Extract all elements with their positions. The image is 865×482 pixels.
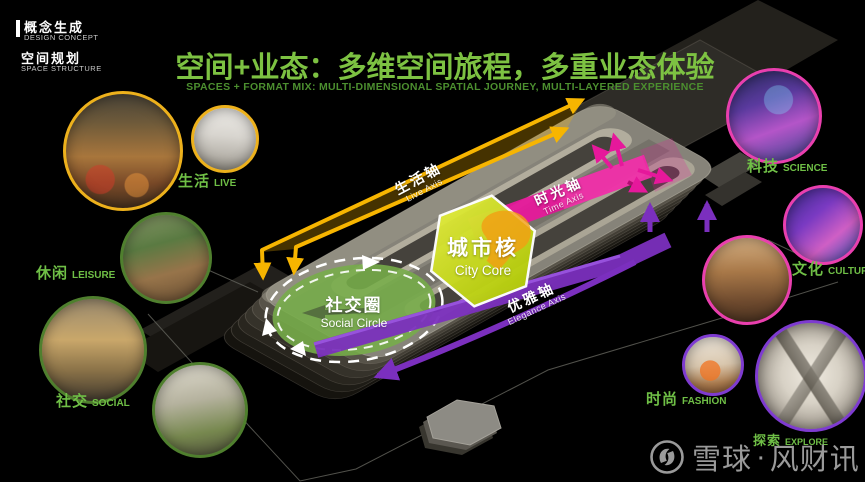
photo-science-arcade — [783, 185, 863, 265]
xueqiu-logo-icon — [648, 438, 686, 476]
city-core-label: 城市核 City Core — [418, 232, 548, 278]
section-2-subtitle: SPACE STRUCTURE — [21, 64, 102, 73]
slide: 生活轴 Live Axis 时光轴 Time Axis 优雅轴 Elegance… — [0, 0, 865, 482]
label-life: 生活LIVE — [178, 170, 236, 191]
photo-science-neon — [726, 68, 822, 164]
label-culture: 文化CULTURE — [792, 258, 865, 279]
page-subtitle: SPACES + FORMAT MIX: MULTI-DIMENSIONAL S… — [152, 81, 738, 93]
watermark: 雪球 · 风财讯 — [648, 436, 860, 478]
watermark-brand-1: 雪球 — [692, 436, 752, 478]
label-fashion: 时尚FASHION — [646, 388, 726, 409]
social-circle-label: 社交圈 Social Circle — [289, 291, 419, 330]
label-science: 科技SCIENCE — [747, 155, 827, 176]
photo-social-foodcourt — [152, 362, 248, 458]
photo-life-restaurant — [63, 91, 183, 211]
watermark-brand-2: 风财讯 — [770, 436, 860, 478]
small-slab — [419, 400, 501, 455]
photo-leisure-terrace — [120, 212, 212, 304]
photo-fashion-mall — [755, 320, 865, 432]
label-social: 社交SOCIAL — [56, 390, 130, 411]
label-leisure: 休闲LEISURE — [36, 262, 115, 283]
photo-social-atrium — [39, 296, 147, 404]
watermark-separator: · — [756, 441, 766, 474]
photo-life-playground — [191, 105, 259, 173]
section-1-subtitle: DESIGN CONCEPT — [24, 33, 99, 42]
page-title: 空间+业态：多维空间旅程，多重业态体验 — [152, 44, 738, 86]
header-accent-bar — [16, 20, 20, 37]
photo-culture-teahouse — [702, 235, 792, 325]
photo-fashion-store — [682, 334, 744, 396]
